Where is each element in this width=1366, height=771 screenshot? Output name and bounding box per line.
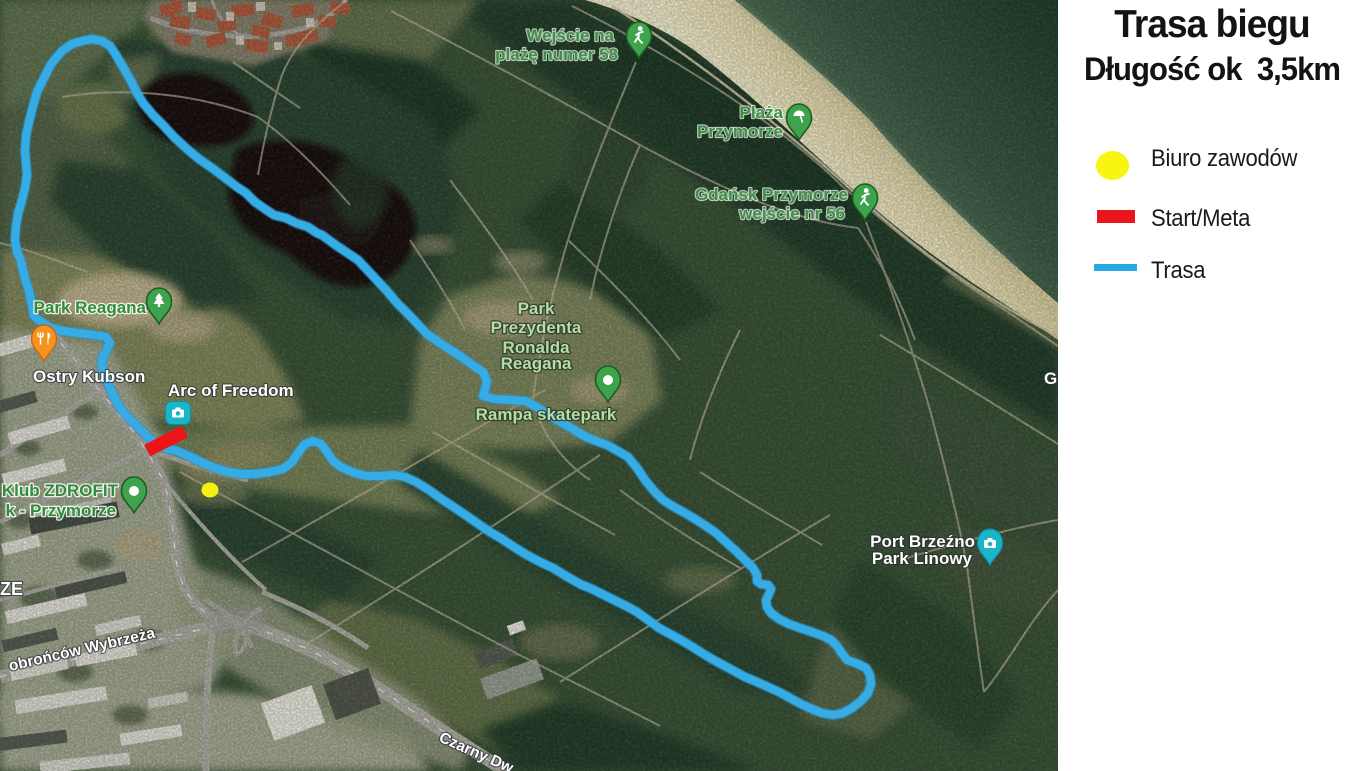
svg-text:wejście nr 56: wejście nr 56 xyxy=(738,204,845,223)
svg-text:Reagana: Reagana xyxy=(501,354,572,373)
svg-text:Arc of Freedom: Arc of Freedom xyxy=(168,381,294,400)
svg-text:ZE: ZE xyxy=(0,579,23,599)
svg-text:Rampa skatepark: Rampa skatepark xyxy=(476,405,617,424)
svg-text:Wejście na: Wejście na xyxy=(526,26,614,45)
svg-text:Park Reagana: Park Reagana xyxy=(34,298,147,317)
svg-text:Ostry Kubson: Ostry Kubson xyxy=(33,367,145,386)
svg-text:Gdańsk Przymorze: Gdańsk Przymorze xyxy=(695,185,848,204)
svg-text:Prezydenta: Prezydenta xyxy=(491,318,582,337)
svg-text:Klub ZDROFIT: Klub ZDROFIT xyxy=(2,481,119,500)
svg-text:G: G xyxy=(1044,369,1057,388)
svg-text:Plaża: Plaża xyxy=(740,103,784,122)
svg-text:Park Linowy: Park Linowy xyxy=(872,549,973,568)
svg-text:Park: Park xyxy=(518,299,555,318)
svg-text:k - Przymorze: k - Przymorze xyxy=(5,501,116,520)
svg-text:plażę numer 58: plażę numer 58 xyxy=(495,45,618,64)
svg-text:Przymorze: Przymorze xyxy=(697,122,783,141)
